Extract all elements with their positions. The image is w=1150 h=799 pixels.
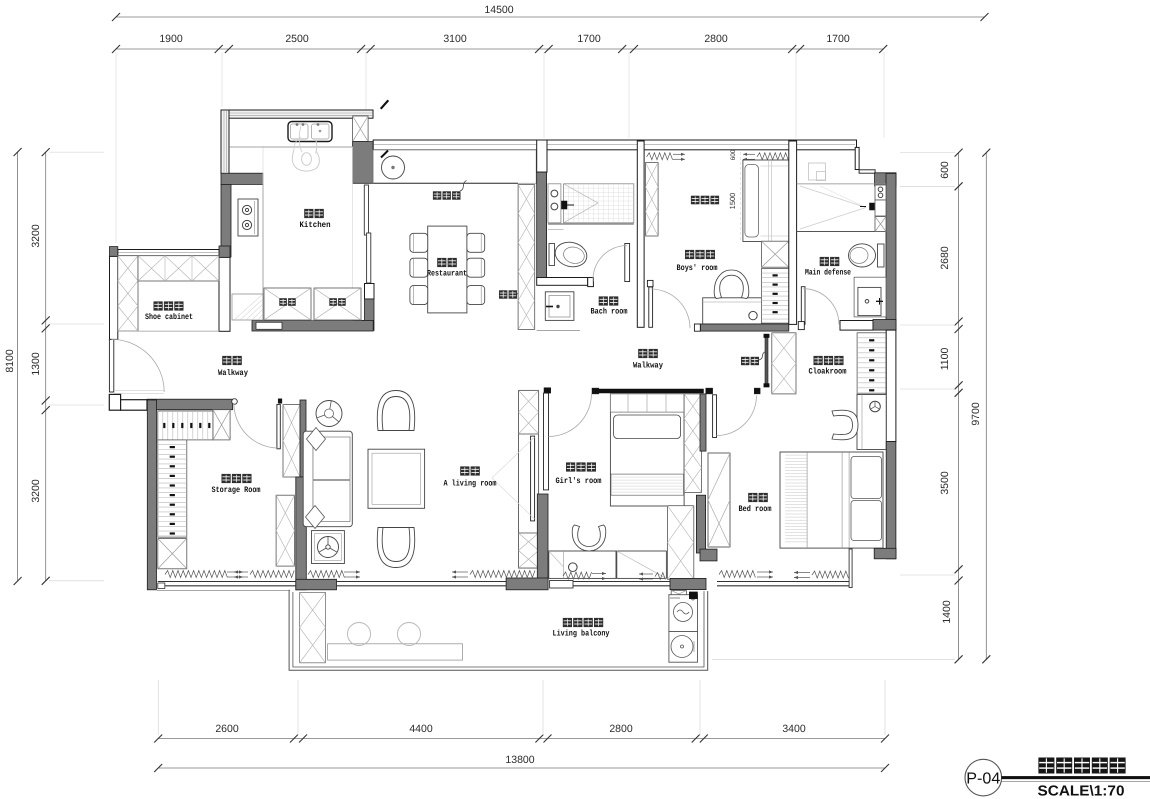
svg-text:9700: 9700 xyxy=(970,402,982,426)
svg-text:2500: 2500 xyxy=(285,33,309,45)
svg-text:3500: 3500 xyxy=(939,471,951,495)
svg-text:3100: 3100 xyxy=(443,33,467,45)
svg-text:Walkway: Walkway xyxy=(633,361,663,371)
svg-text:Bed room: Bed room xyxy=(739,504,772,514)
svg-text:4400: 4400 xyxy=(409,723,433,735)
svg-text:1500: 1500 xyxy=(728,193,737,210)
svg-text:Shoe cabinet: Shoe cabinet xyxy=(145,312,193,322)
svg-text:Bach room: Bach room xyxy=(591,307,628,317)
svg-text:1100: 1100 xyxy=(939,348,951,371)
svg-text:600: 600 xyxy=(730,149,737,160)
svg-text:3200: 3200 xyxy=(30,224,42,248)
svg-text:2800: 2800 xyxy=(704,33,728,45)
svg-text:1700: 1700 xyxy=(577,33,601,45)
svg-text:3400: 3400 xyxy=(782,723,806,735)
svg-text:P-04: P-04 xyxy=(966,771,1000,788)
svg-text:SCALE\1:70: SCALE\1:70 xyxy=(1038,784,1125,799)
svg-text:600: 600 xyxy=(939,161,951,179)
svg-text:2600: 2600 xyxy=(215,723,239,735)
svg-text:14500: 14500 xyxy=(484,4,513,16)
svg-text:1700: 1700 xyxy=(826,33,850,45)
svg-text:Cloakroom: Cloakroom xyxy=(809,367,847,377)
svg-text:Main defense: Main defense xyxy=(805,268,851,278)
svg-text:Living balcony: Living balcony xyxy=(553,629,610,639)
svg-text:1900: 1900 xyxy=(159,33,183,45)
svg-text:8100: 8100 xyxy=(4,349,16,373)
svg-text:Kitchen: Kitchen xyxy=(300,220,331,230)
svg-text:Walkway: Walkway xyxy=(218,368,248,378)
svg-text:13800: 13800 xyxy=(505,754,534,766)
svg-text:Storage Room: Storage Room xyxy=(212,486,261,495)
svg-text:2680: 2680 xyxy=(939,246,951,270)
svg-text:1300: 1300 xyxy=(30,352,42,376)
svg-text:Girl's room: Girl's room xyxy=(556,476,602,486)
svg-text:3200: 3200 xyxy=(30,479,42,503)
svg-text:Boys' room: Boys' room xyxy=(677,263,718,273)
svg-text:Restaurant: Restaurant xyxy=(427,270,467,279)
svg-text:1400: 1400 xyxy=(941,600,953,624)
svg-text:2800: 2800 xyxy=(609,723,633,735)
svg-text:A living room: A living room xyxy=(444,479,497,489)
